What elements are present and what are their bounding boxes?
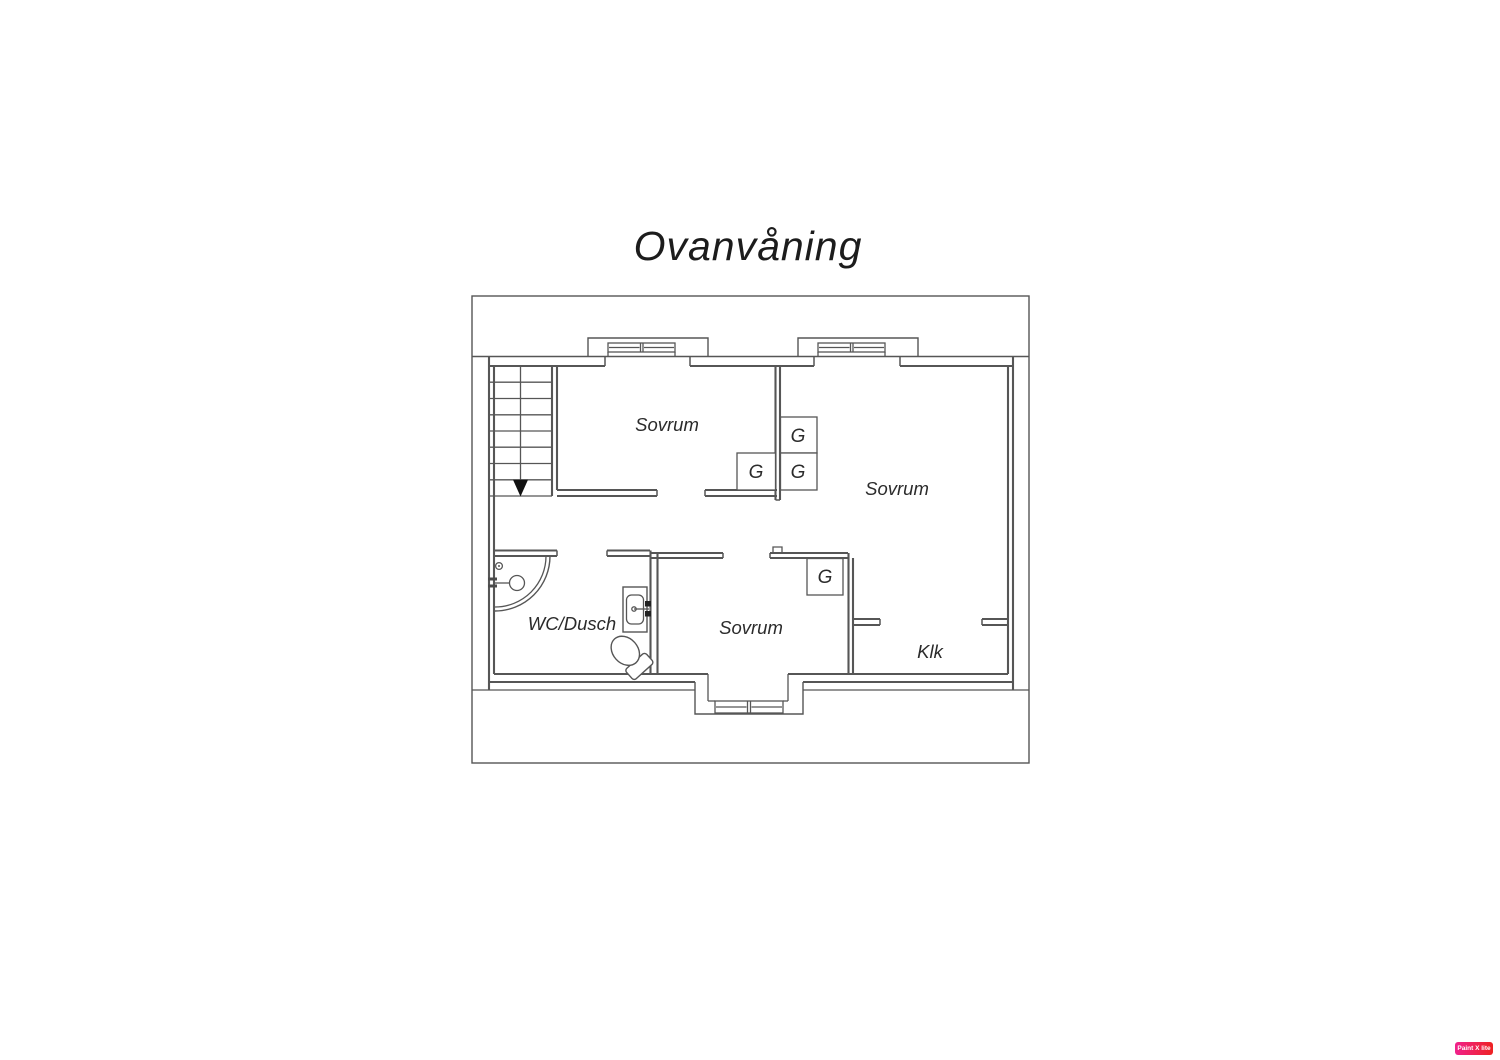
walls	[472, 357, 1029, 691]
wardrobe-g-3: G	[737, 453, 776, 490]
watermark-badge: Paint X lite	[1455, 1042, 1493, 1055]
dormer-window-top-right	[798, 338, 918, 357]
wardrobe-label: G	[818, 567, 833, 588]
room-bedroom-2: Sovrum	[865, 478, 929, 499]
sink	[623, 587, 651, 632]
window-symbol	[818, 343, 885, 357]
room-label-bedroom-3: Sovrum	[719, 617, 783, 638]
window-symbol	[608, 343, 675, 357]
wall-bedroom1-bedroom2	[776, 366, 781, 500]
stairs	[489, 366, 557, 497]
window-symbol	[715, 701, 783, 713]
room-label-klk: Klk	[917, 641, 944, 662]
stairs-down-arrow	[513, 480, 528, 497]
room-wc-dusch: WC/Dusch	[488, 551, 658, 681]
room-label-bedroom-1: Sovrum	[635, 414, 699, 435]
dormer-window-bottom	[695, 674, 803, 714]
watermark-label: Paint X lite	[1457, 1045, 1490, 1052]
room-label-wc-dusch: WC/Dusch	[528, 613, 616, 634]
wardrobe-g-1: G	[781, 417, 818, 453]
floor-plan-canvas: Ovanvåning	[0, 0, 1500, 1060]
shower	[488, 556, 550, 611]
floor-title: Ovanvåning	[634, 223, 863, 269]
wardrobe-label: G	[791, 426, 806, 447]
room-klk: Klk	[853, 619, 1008, 662]
wardrobe-g-4: G	[807, 559, 843, 596]
wardrobe-label: G	[791, 462, 806, 483]
dormer-window-top-left	[588, 338, 708, 357]
room-label-bedroom-2: Sovrum	[865, 478, 929, 499]
wardrobe-label: G	[749, 462, 764, 483]
wardrobe-g-2: G	[781, 453, 818, 490]
